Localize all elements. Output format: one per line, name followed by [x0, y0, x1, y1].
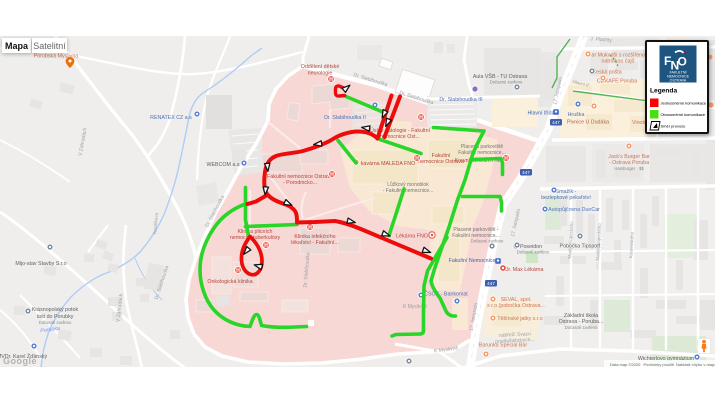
svg-text:Směr provozu: Směr provozu [661, 123, 686, 128]
svg-text:Legenda: Legenda [650, 87, 677, 94]
svg-text:Pivnice U Dudáka: Pivnice U Dudáka [567, 120, 609, 126]
svg-text:Dr. Max Lékárna: Dr. Max Lékárna [505, 267, 544, 273]
svg-text:Oddělení dětské: Oddělení dětské [301, 64, 340, 70]
svg-text:RENATEX CZ a.s: RENATEX CZ a.s [150, 115, 192, 121]
svg-text:Lůžkový monoblok: Lůžkový monoblok [387, 181, 429, 188]
svg-text:nabídkou čajů: nabídkou čajů [602, 58, 635, 65]
svg-text:Podmínky použití: Podmínky použití [644, 362, 676, 367]
svg-text:neurologie: neurologie [308, 71, 333, 77]
svg-text:Dr. Slabihoudka II: Dr. Slabihoudka II [324, 115, 366, 121]
svg-text:s r.o (pobočka Ostrava...: s r.o (pobočka Ostrava... [487, 303, 545, 309]
svg-text:Fakultní nemocnice...: Fakultní nemocnice... [458, 150, 506, 156]
svg-text:Dočasně zavřeno: Dočasně zavřeno [517, 250, 550, 255]
svg-text:Česká pošta: Česká pošta [592, 69, 621, 76]
svg-text:447: 447 [552, 120, 560, 125]
svg-text:ČSOB - Bankomat: ČSOB - Bankomat [424, 291, 468, 298]
svg-text:Obousměrné komunikace: Obousměrné komunikace [661, 112, 706, 117]
svg-text:Jednosměrné komunikace: Jednosměrné komunikace [661, 100, 707, 105]
svg-text:OSTRAVA: OSTRAVA [670, 78, 687, 82]
svg-text:- Fakultní nemocnice...: - Fakultní nemocnice... [383, 188, 434, 194]
svg-text:Dr. Slabihoudka III: Dr. Slabihoudka III [439, 97, 482, 103]
svg-text:447: 447 [487, 281, 495, 286]
svg-text:Fakultní Nemocnice: Fakultní Nemocnice [449, 258, 496, 264]
svg-text:Mijo-stav Stavby S.r.o: Mijo-stav Stavby S.r.o [15, 261, 66, 267]
svg-text:Lékárna FNO: Lékárna FNO [396, 234, 428, 240]
svg-text:O: O [678, 54, 687, 68]
svg-text:kavárna MALEDA FNO: kavárna MALEDA FNO [361, 161, 415, 167]
svg-text:Hlavní třída: Hlavní třída [527, 111, 554, 117]
svg-text:447: 447 [522, 170, 530, 175]
svg-text:lékařství - Fakultní...: lékařství - Fakultní... [291, 240, 339, 246]
svg-text:Hruška: Hruška [568, 112, 585, 118]
svg-text:- Porodnicko...: - Porodnicko... [283, 180, 317, 186]
svg-text:Těšínské jatky s.r.o: Těšínské jatky s.r.o [497, 316, 542, 322]
svg-text:Krásnopolský potok: Krásnopolský potok [32, 307, 79, 313]
svg-text:Dočasné zavřeno: Dočasné zavřeno [471, 239, 504, 244]
svg-text:WEBCOM a.s: WEBCOM a.s [207, 162, 240, 168]
svg-text:Autopůjčovna DuoCar: Autopůjčovna DuoCar [548, 206, 600, 213]
svg-text:Dočasně zavřeno: Dočasně zavřeno [565, 325, 598, 330]
svg-text:Dočasné zavřeno: Dočasné zavřeno [39, 320, 72, 325]
svg-text:Hamburger · $$: Hamburger · $$ [614, 166, 644, 171]
svg-text:Data map ©2020: Data map ©2020 [610, 362, 641, 367]
svg-text:bezlepkové pekařství: bezlepkové pekařství [541, 195, 591, 201]
svg-text:Onkologická klinika: Onkologická klinika [207, 279, 252, 285]
svg-text:Nahlásit chybu v mapách: Nahlásit chybu v mapách [676, 362, 715, 367]
